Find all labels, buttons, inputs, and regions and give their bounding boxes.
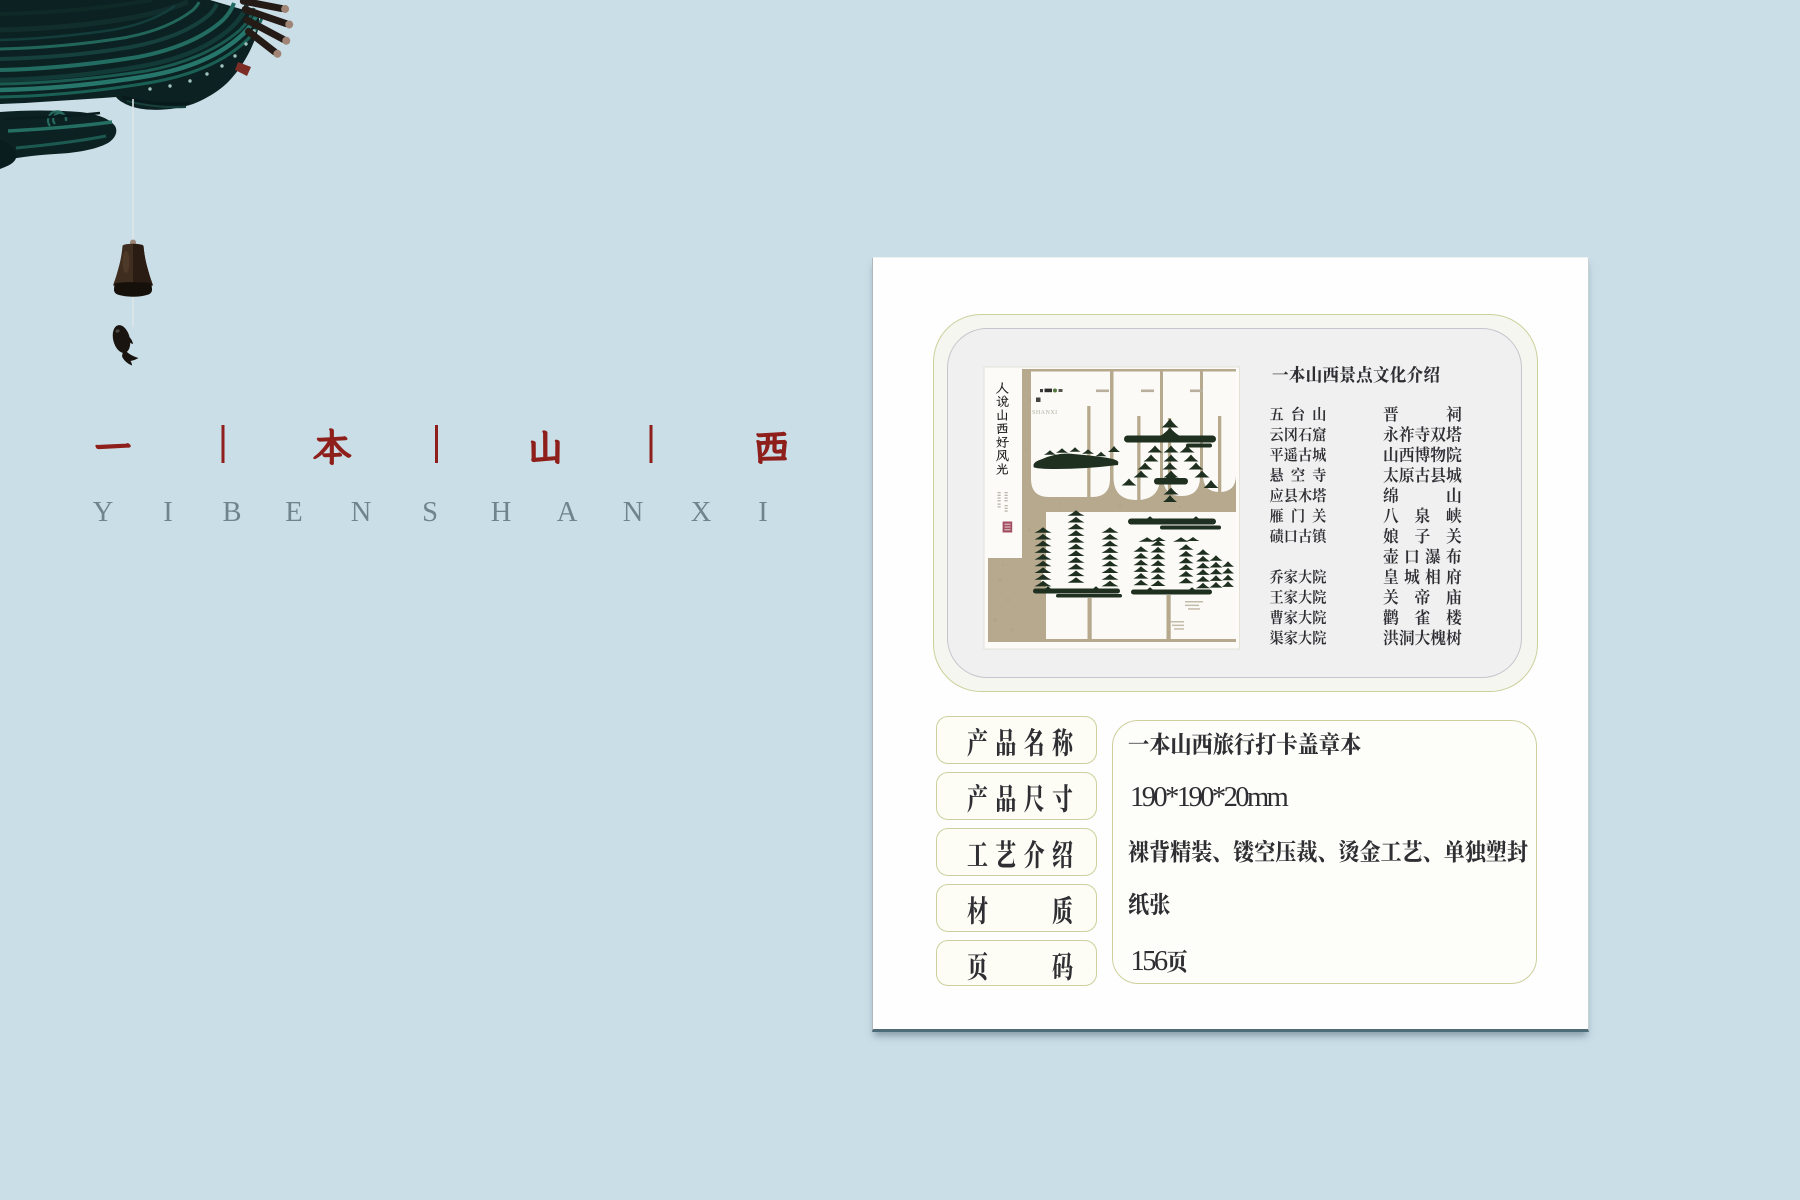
svg-text:I: I <box>163 497 173 528</box>
svg-text:H: H <box>491 497 512 528</box>
svg-text:SHANXI: SHANXI <box>1032 410 1058 416</box>
svg-text:B: B <box>222 497 241 528</box>
svg-text:Y: Y <box>93 497 114 528</box>
svg-text:E: E <box>285 497 302 528</box>
svg-text:X: X <box>691 497 712 528</box>
svg-text:S: S <box>422 497 438 528</box>
svg-text:A: A <box>557 497 578 528</box>
svg-text:190*190*20mm: 190*190*20mm <box>1130 782 1289 813</box>
svg-text:N: N <box>623 497 644 528</box>
svg-text:N: N <box>351 497 372 528</box>
svg-text:156: 156 <box>1131 946 1168 977</box>
svg-text:I: I <box>758 497 768 528</box>
